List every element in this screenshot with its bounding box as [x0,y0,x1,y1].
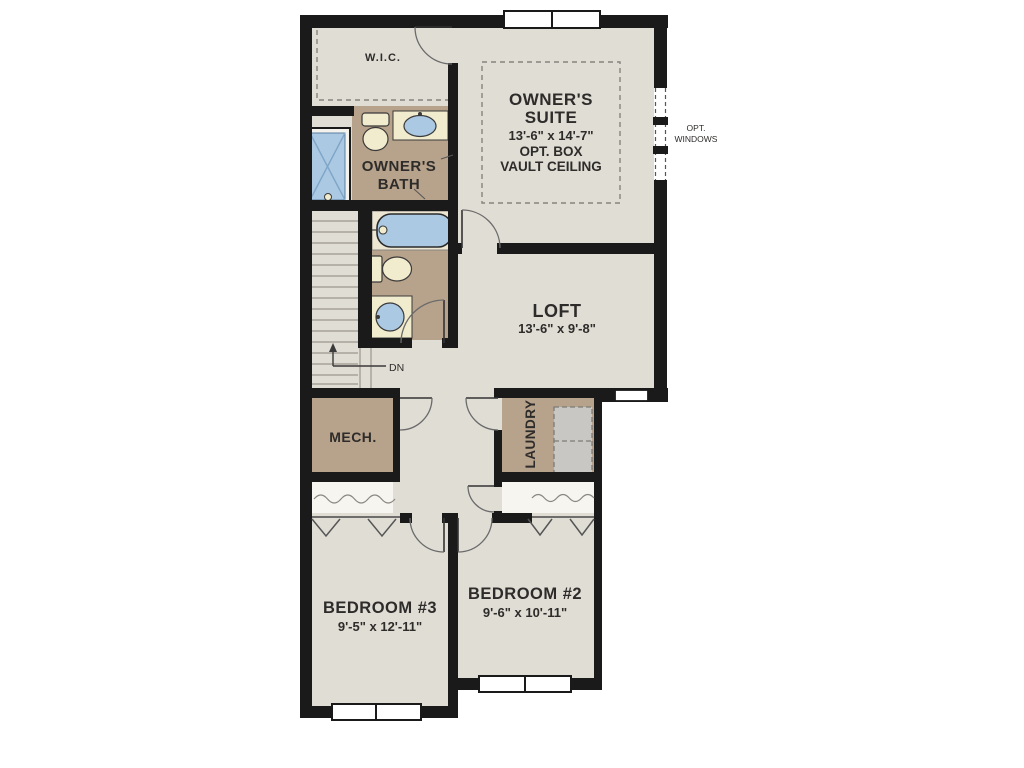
floor-plan-drawing: DN [0,0,1024,768]
window-loft-bottom [615,390,648,401]
wall-mech-bottom [300,472,400,482]
bedroom3-dims: 9'-5" x 12'-11" [338,619,422,634]
bathtub-icon [372,211,456,250]
wall-left-exterior [300,15,312,718]
bedroom2-dims: 9'-6" x 10'-11" [483,605,567,620]
wall-bedroom-divider [448,518,458,718]
washer-dryer-icon [554,407,592,475]
owners-suite-label-2: SUITE [525,108,578,127]
window-bedroom3 [332,704,421,720]
loft-label: LOFT [533,301,582,321]
wall-suite-door-jamb [448,243,462,254]
wall-closet2-left-stub-top [494,482,502,487]
wall-bedroom-top-d [594,513,602,523]
toilet-icon-2 [370,256,412,282]
wall-top-exterior [300,15,668,28]
wall-bedroom2-right [594,388,602,690]
wall-hallbath-bottom-left [358,338,412,348]
window-owners-suite-top [504,11,600,28]
mech-label: MECH. [329,429,377,445]
bedroom2-closet-floor [502,482,594,513]
loft-dims: 13'-6" x 9'-8" [518,321,596,336]
owners-suite-note-1: OPT. BOX [519,144,582,159]
wall-right-exterior [654,15,667,402]
wall-mech-right [393,388,400,482]
window-opt-right [653,88,668,180]
wall-laundry-top [494,388,602,398]
bedroom2-label: BEDROOM #2 [468,585,582,603]
sink-icon-2 [370,296,412,338]
wall-bath-bottom [300,200,458,211]
opt-windows-label-1: OPT. [687,123,706,133]
owners-suite-dims: 13'-6" x 14'-7" [508,128,593,143]
wall-laundry-bottom [494,472,602,482]
wall-suite-loft-divider [497,243,654,254]
floor-plan-page: DN [0,0,1024,768]
laundry-label: LAUNDRY [523,400,538,469]
wall-bedroom-top-c [492,513,532,523]
owners-suite-label-1: OWNER'S [509,90,593,109]
sink-icon [393,111,448,140]
toilet-icon [362,113,389,151]
wall-laundry-left [494,430,502,482]
wall-wic-bottom [300,106,354,116]
bedroom3-label: BEDROOM #3 [323,599,437,617]
owners-suite-note-2: VAULT CEILING [500,159,602,174]
stairs-down-label: DN [389,362,404,374]
window-bedroom2 [479,676,571,692]
wall-stairs-right [358,200,372,346]
owners-bath-label-1: OWNER'S [362,158,437,175]
owners-bath-label-2: BATH [378,176,421,193]
opt-windows-label-2: WINDOWS [675,134,718,144]
wall-mech-top [300,388,400,398]
wic-label: W.I.C. [365,52,401,64]
